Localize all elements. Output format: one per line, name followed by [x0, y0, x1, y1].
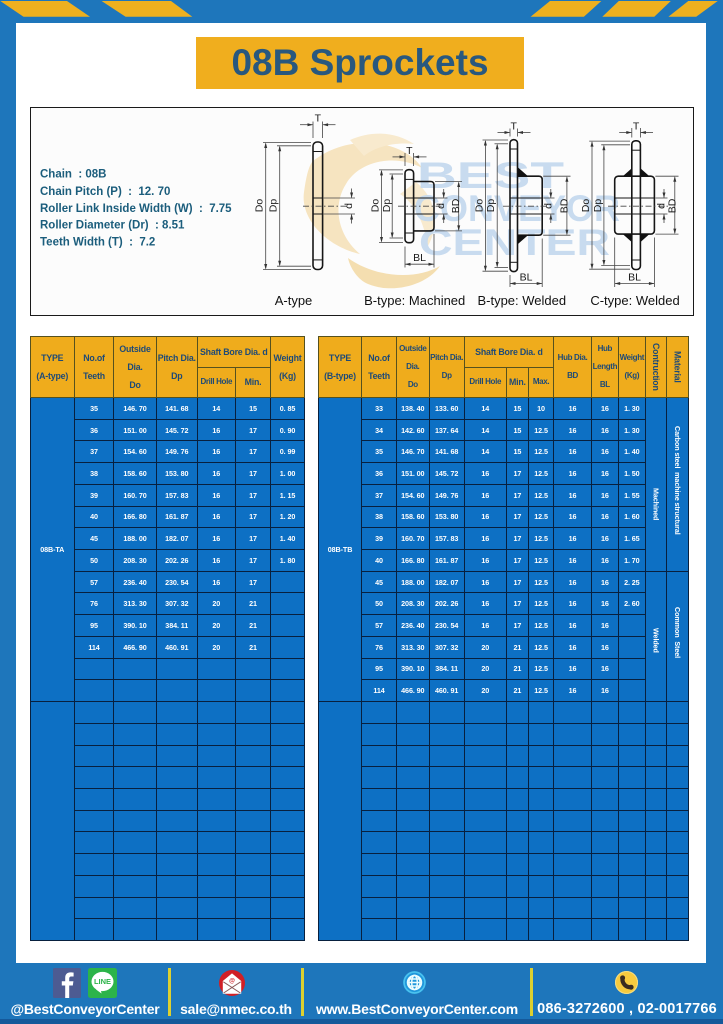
svg-text:BL: BL: [628, 272, 641, 284]
svg-text:Chain Pitch (P) : 12. 70: Chain Pitch (P) : 12. 70: [40, 186, 170, 198]
svg-text:LINE: LINE: [93, 977, 110, 986]
svg-text:BD: BD: [666, 198, 678, 213]
svg-text:Dp: Dp: [381, 199, 393, 213]
svg-text:Dp: Dp: [592, 199, 604, 213]
svg-text:CENTER: CENTER: [419, 222, 610, 263]
svg-text:d: d: [343, 203, 355, 209]
svg-text:@: @: [229, 978, 235, 984]
svg-text:T: T: [315, 113, 322, 125]
svg-text:Do: Do: [254, 199, 266, 213]
svg-text:d: d: [542, 203, 554, 209]
svg-text:Dp: Dp: [485, 199, 497, 213]
svg-text:Roller Link Inside Width (W): Roller Link Inside Width (W) : 7.75: [40, 203, 232, 215]
svg-text:BD: BD: [558, 198, 570, 213]
svg-text:BL: BL: [413, 252, 426, 264]
svg-text:BL: BL: [520, 272, 533, 284]
svg-text:Roller Diameter (Dr) : 8.51: Roller Diameter (Dr) : 8.51: [40, 220, 185, 232]
svg-text:B-type: Machined: B-type: Machined: [364, 293, 465, 308]
svg-text:C-type: Welded: C-type: Welded: [590, 293, 679, 308]
svg-text:Teeth Width (T) : 7.2: Teeth Width (T) : 7.2: [40, 237, 155, 249]
svg-text:d: d: [435, 203, 447, 209]
svg-text:B-type: Welded: B-type: Welded: [477, 293, 566, 308]
svg-text:T: T: [633, 121, 640, 133]
svg-text:T: T: [406, 145, 413, 157]
svg-text:BD: BD: [450, 198, 462, 213]
svg-text:A-type: A-type: [275, 293, 313, 308]
svg-text:Do: Do: [473, 199, 485, 213]
svg-text:Dp: Dp: [267, 199, 279, 213]
svg-text:T: T: [510, 121, 517, 133]
svg-text:Do: Do: [580, 199, 592, 213]
svg-text:Chain : 08B: Chain : 08B: [40, 169, 106, 181]
svg-text:Do: Do: [369, 199, 381, 213]
